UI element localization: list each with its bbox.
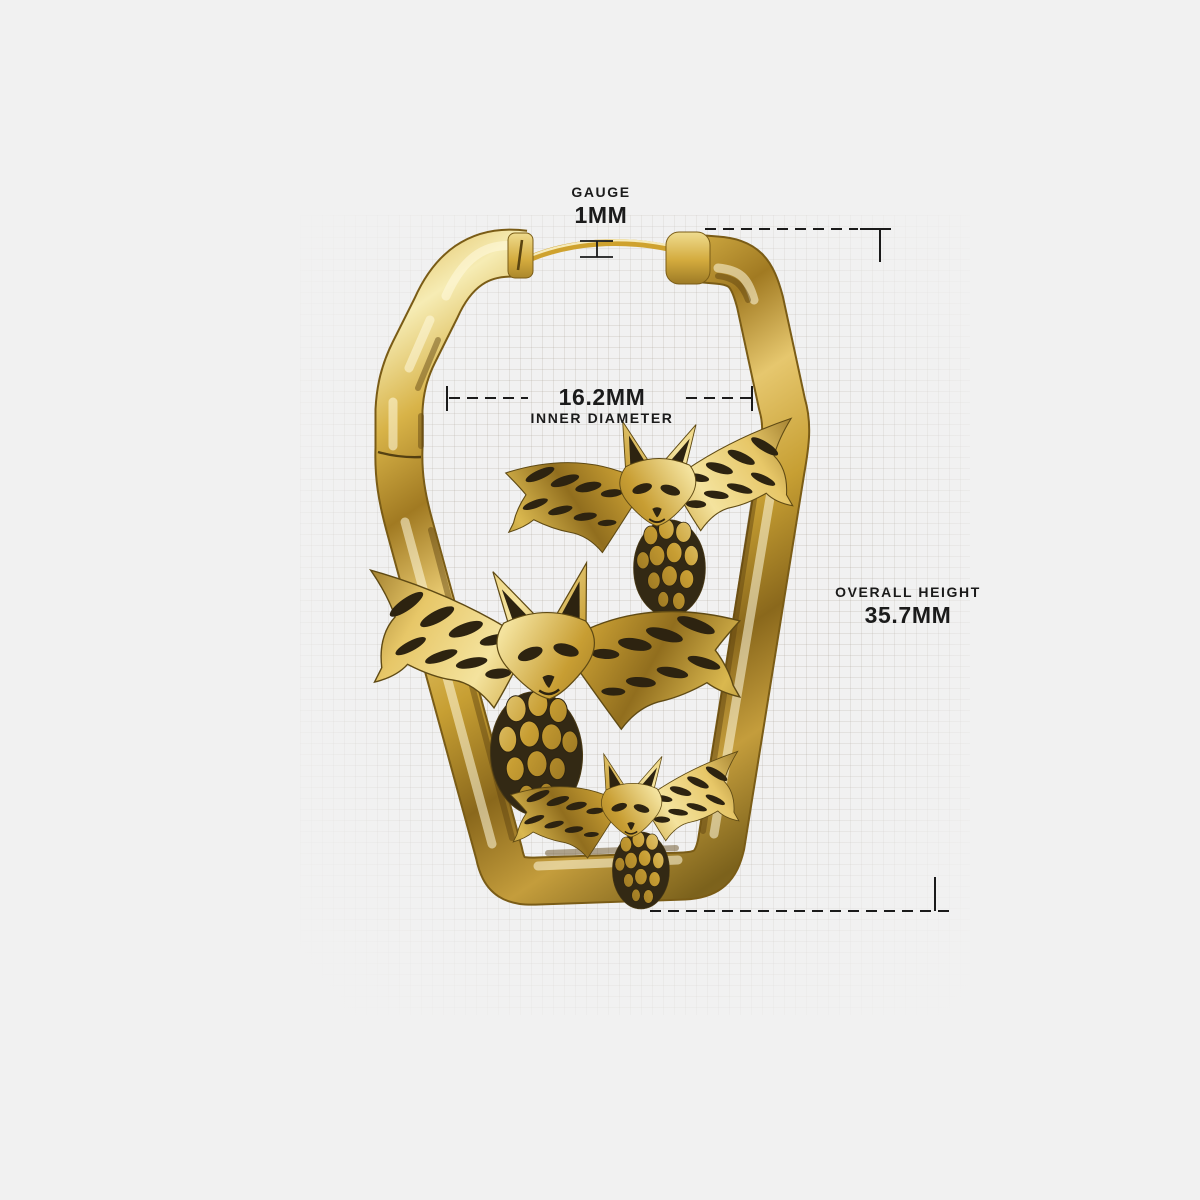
gauge-label: GAUGE <box>571 184 630 200</box>
ear-wire <box>531 243 668 258</box>
gauge-annotation: GAUGE 1MM <box>571 184 630 229</box>
overall-height-annotation: OVERALL HEIGHT 35.7MM <box>835 584 981 629</box>
product-dimension-image: GAUGE 1MM 16.2MM INNER DIAMETER OVERALL … <box>0 0 1200 1200</box>
inner-diameter-label: INNER DIAMETER <box>531 410 674 426</box>
earring-illustration <box>0 0 1200 1200</box>
overall-height-label: OVERALL HEIGHT <box>835 584 981 600</box>
inner-diameter-annotation: 16.2MM INNER DIAMETER <box>531 384 674 427</box>
overall-height-value: 35.7MM <box>835 602 981 628</box>
gauge-value: 1MM <box>571 202 630 228</box>
inner-diameter-value: 16.2MM <box>531 384 674 410</box>
hinge-barrel <box>666 232 710 284</box>
